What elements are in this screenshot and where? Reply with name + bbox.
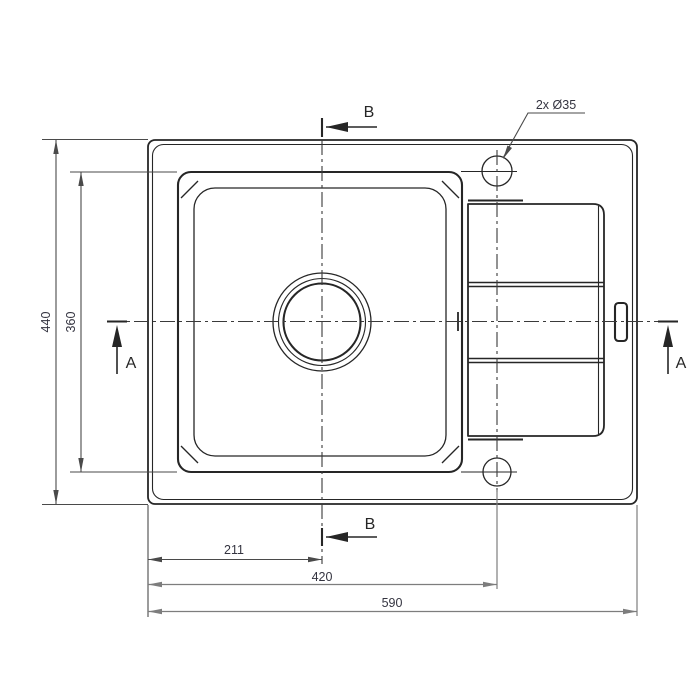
- dim-590-arrow-left: [148, 609, 162, 614]
- section-a-left-arrow: [112, 325, 122, 347]
- drainboard-outline: [468, 204, 604, 436]
- dim-360-arrow-bottom: [78, 458, 83, 472]
- section-a-right-label: A: [676, 355, 687, 372]
- dim-211-value: 211: [224, 543, 244, 557]
- section-b-bottom-arrow: [326, 532, 348, 542]
- dim-420-arrow-right: [483, 582, 497, 587]
- tap-hole-note: 2x Ø35: [536, 98, 576, 112]
- tap-hole-leader-line: [503, 113, 585, 158]
- dim-420-arrow-left: [148, 582, 162, 587]
- sink-technical-drawing: 2x Ø35 B B A A 440: [0, 0, 700, 700]
- section-a-right-arrow: [663, 325, 673, 347]
- dim-211-arrow-right: [308, 557, 322, 562]
- dim-overall-depth: 440: [39, 140, 148, 505]
- section-marker-b-top: B: [322, 104, 377, 137]
- bowl-corner-chamfer-bl: [181, 446, 198, 463]
- bowl-corner-chamfer-tr: [442, 181, 459, 198]
- section-b-top-label: B: [364, 104, 375, 121]
- section-b-bottom-label: B: [365, 516, 376, 533]
- dim-440-arrow-top: [53, 140, 58, 154]
- bottom-dimensions: 211 420 590: [148, 490, 637, 617]
- section-a-left-label: A: [126, 355, 137, 372]
- bowl-corner-chamfer-tl: [181, 181, 198, 198]
- section-marker-a-left: A: [107, 322, 137, 375]
- dim-590-arrow-right: [623, 609, 637, 614]
- dim-360-value: 360: [64, 312, 78, 333]
- dim-211-arrow-left: [148, 557, 162, 562]
- dim-440-arrow-bottom: [53, 490, 58, 504]
- section-b-top-arrow: [326, 122, 348, 132]
- drainboard: [458, 201, 627, 440]
- bowl-corner-chamfer-br: [442, 446, 459, 463]
- drawing-svg: 2x Ø35 B B A A 440: [0, 0, 700, 700]
- dim-420-value: 420: [312, 570, 333, 584]
- dim-440-value: 440: [39, 312, 53, 333]
- section-marker-b-bottom: B: [322, 516, 377, 546]
- section-marker-a-right: A: [658, 322, 687, 375]
- dim-590-value: 590: [382, 596, 403, 610]
- tap-hole-leader-arrow: [503, 146, 512, 160]
- tap-holes: 2x Ø35: [461, 98, 585, 486]
- dim-360-arrow-top: [78, 172, 83, 186]
